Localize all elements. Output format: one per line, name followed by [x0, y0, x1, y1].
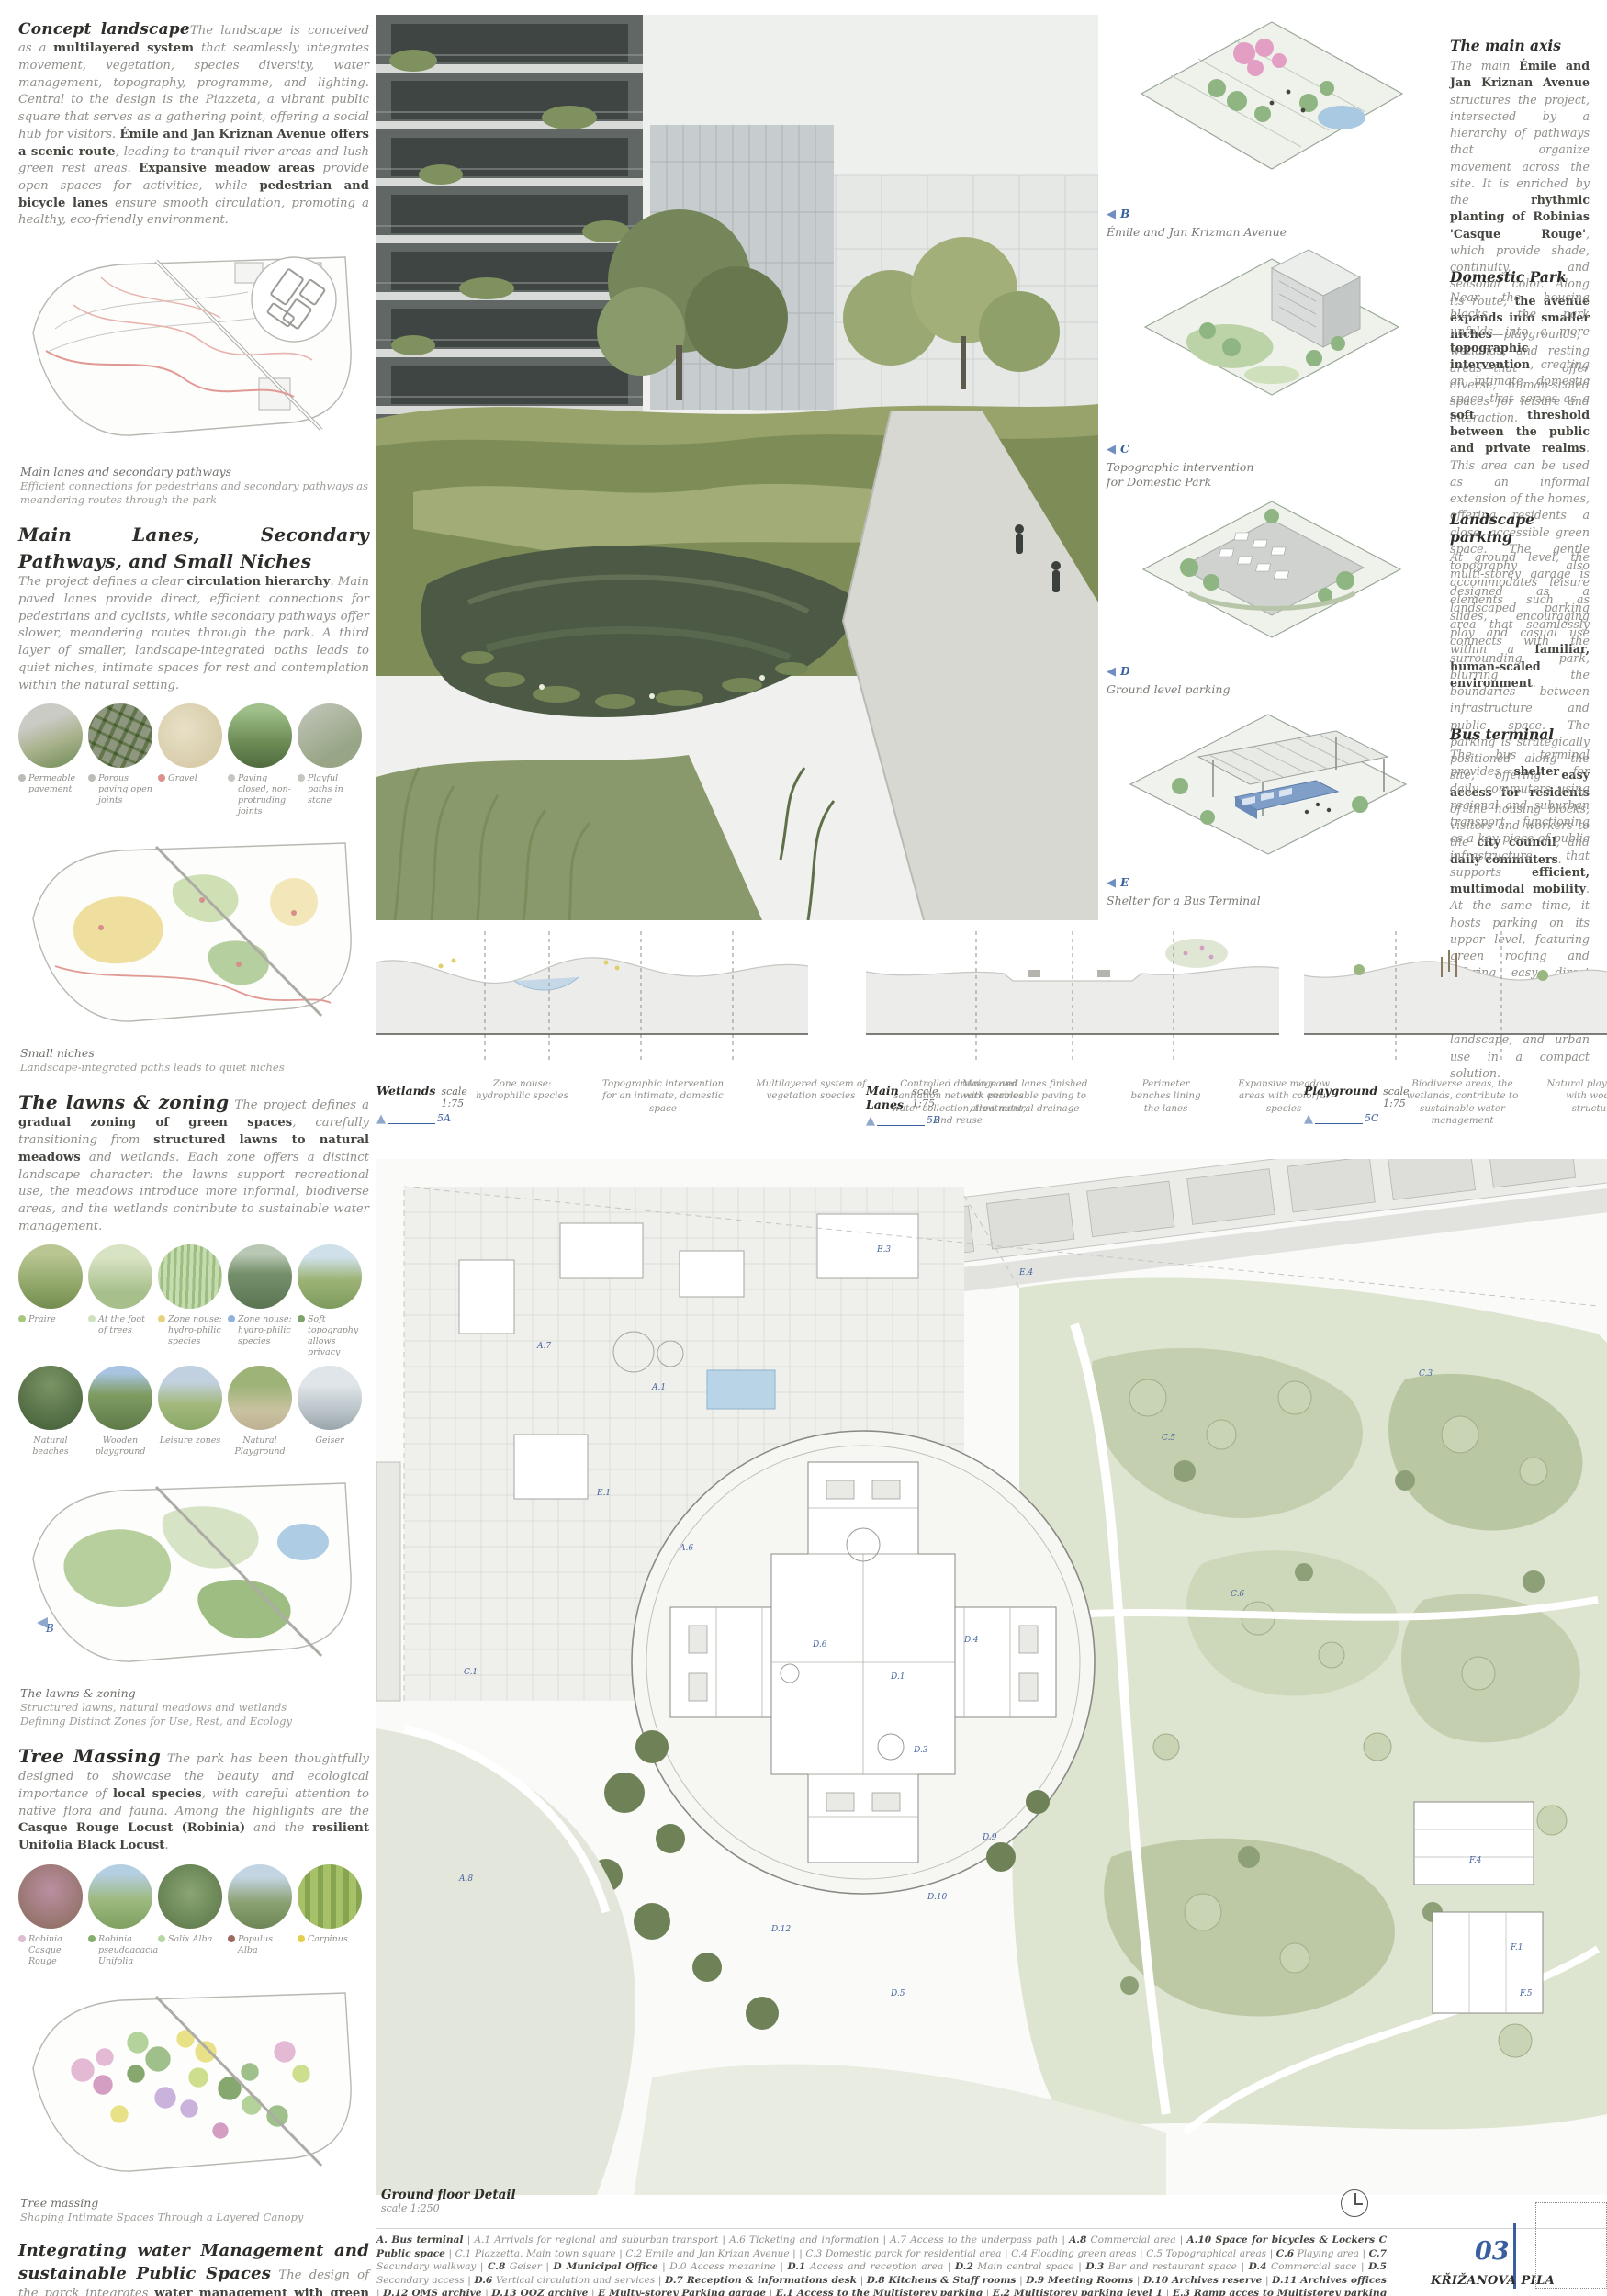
- plan-room-label: A.7: [537, 1343, 551, 1351]
- plan-room-label: F.1: [1511, 1944, 1523, 1953]
- figure-tree-massing-plan: Tree massing Shaping Intimate Spaces Thr…: [18, 1978, 369, 2224]
- block-title: Bus terminal: [1450, 726, 1590, 743]
- legend-dot-icon: [158, 1315, 165, 1322]
- zone-swatch: Zone nouse: hydro-philic species: [228, 1244, 292, 1358]
- caption-title: The lawns & zoning: [20, 1686, 369, 1701]
- material-photo: [298, 703, 362, 768]
- zone-label: Zone nouse: hydro-philic species: [168, 1314, 222, 1347]
- axon-caption-text: Émile and Jan Krizman Avenue: [1107, 225, 1287, 240]
- species-photo: [228, 1864, 292, 1929]
- legend-dot-icon: [298, 1935, 305, 1942]
- legend-dot-icon: [88, 1935, 96, 1942]
- zone-label: At the foot of trees: [98, 1314, 152, 1336]
- section-main-lanes: Main Lanes, Secondary Pathways, and Smal…: [18, 522, 369, 694]
- view-letter: C: [1120, 443, 1129, 456]
- foreground-building: [376, 15, 643, 419]
- axon-parking: [1134, 492, 1410, 667]
- material-photo: [228, 703, 292, 768]
- figure-lawns-zoning-plan: B The lawns & zoning Structured lawns, n…: [18, 1469, 369, 1728]
- section-marker-icon: ▲: [376, 1115, 386, 1124]
- zone-label: Soft topography allows privacy: [308, 1314, 362, 1358]
- material-label: Paving closed, non-protruding joints: [238, 773, 292, 817]
- plan-room-label: D.4: [964, 1637, 978, 1645]
- zone-label: Geiser: [315, 1435, 343, 1446]
- axon-caption-domestic: ◀ C Topographic intervention for Domesti…: [1107, 439, 1263, 490]
- species-swatch: Populus Alba: [228, 1864, 292, 1967]
- plan-room-label: D.1: [891, 1673, 905, 1682]
- view-letter: E: [1120, 876, 1129, 889]
- axon-caption-avenue: ◀ B Émile and Jan Krizman Avenue: [1107, 204, 1287, 240]
- left-column: Concept landscapeThe landscape is concei…: [18, 18, 369, 2296]
- species-label: Carpinus: [308, 1934, 348, 1945]
- zone-swatch: Geiser: [298, 1366, 362, 1458]
- legend-dot-icon: [18, 1315, 26, 1322]
- zone-swatch: Zone nouse: hydro-philic species: [158, 1244, 222, 1358]
- view-letter: D: [1120, 665, 1129, 678]
- material-label: Porous paving open joints: [98, 773, 152, 806]
- plan-room-label: C.5: [1162, 1435, 1175, 1443]
- tree-massing-drawing: [18, 1978, 369, 2185]
- caption-title: Small niches: [20, 1046, 369, 1061]
- view-marker-icon: ◀: [1107, 443, 1116, 456]
- plan-title: Ground floor Detail: [381, 2188, 516, 2202]
- band-scale: scale 1:75: [912, 1086, 940, 1109]
- zone-label: Zone nouse: hydro-philic species: [238, 1314, 292, 1347]
- figure-caption: Main lanes and secondary pathways Effici…: [20, 465, 369, 507]
- material-swatch: Porous paving open joints: [88, 703, 152, 817]
- plan-title-block: Ground floor Detail scale 1:250: [381, 2188, 516, 2214]
- band-note: Zone nouse: hydrophilic species: [474, 1078, 570, 1128]
- species-label: Robinia Casque Rouge: [28, 1934, 83, 1967]
- zone-photo: [18, 1366, 83, 1430]
- plan-room-label: E.4: [1019, 1269, 1033, 1277]
- axon-caption-text: Topographic intervention for Domestic Pa…: [1107, 460, 1263, 490]
- band-note: Multilayered system of vegetation specie…: [756, 1078, 866, 1128]
- plan-room-label: E.1: [597, 1490, 611, 1498]
- zone-photo: [158, 1366, 222, 1430]
- species-row: Robinia Casque Rouge Robinia pseudoacaci…: [18, 1864, 369, 1967]
- zone-swatch: Praire: [18, 1244, 83, 1358]
- section-body: The park has been thoughtfully designed …: [18, 1752, 369, 1852]
- axon-domestic-park: [1134, 246, 1410, 430]
- zone-swatch: Natural beaches: [18, 1366, 83, 1458]
- plan-room-label: E.3: [877, 1246, 891, 1255]
- legend-dot-icon: [228, 1315, 235, 1322]
- plan-room-label: D.3: [914, 1747, 927, 1755]
- block-title: Domestic Park: [1450, 268, 1590, 286]
- material-photo: [88, 703, 152, 768]
- plan-room-label: F.5: [1520, 1990, 1532, 1998]
- section-body: The project defines a clear circulation …: [18, 575, 369, 692]
- main-lanes-section-drawing: [866, 926, 1279, 1075]
- band-name: Wetlands: [376, 1084, 435, 1097]
- material-swatch: Gravel: [158, 703, 222, 817]
- axon-caption-parking: ◀ D Ground level parking: [1107, 661, 1230, 697]
- axon-caption-text: Shelter for a Bus Terminal: [1107, 894, 1261, 908]
- band-label-wetlands: Wetlandsscale 1:75 ▲5A: [376, 1078, 465, 1124]
- legend-dot-icon: [88, 774, 96, 782]
- band-note: Natural playgrounds with wooden structur…: [1544, 1078, 1607, 1128]
- ground-floor-plan: E.3E.4E.1A.7A.1A.6A.8C.1C.5C.3C.6D.6D.1D…: [376, 1159, 1607, 2195]
- concept-landscape-title: Concept landscape: [18, 20, 190, 39]
- zone-label: Praire: [28, 1314, 56, 1325]
- material-photo: [158, 703, 222, 768]
- legend-dot-icon: [298, 774, 305, 782]
- zone-label: Natural Playground: [228, 1435, 292, 1458]
- plan-scale: scale 1:250: [381, 2202, 516, 2214]
- species-photo: [298, 1864, 362, 1929]
- caption-sub: Shaping Intimate Spaces Through a Layere…: [20, 2211, 369, 2224]
- band-ref: 5B: [927, 1114, 940, 1126]
- plan-room-label: D.12: [771, 1926, 791, 1934]
- band-group-main-lanes: Main Lanesscale 1:75 ▲5B Main paved lane…: [866, 926, 1288, 1126]
- legend-dot-icon: [298, 1315, 305, 1322]
- zone-swatch: Soft topography allows privacy: [298, 1244, 362, 1358]
- materials-row: Permeable pavement Porous paving open jo…: [18, 703, 369, 817]
- species-swatch: Robinia pseudoacacia Unifolia: [88, 1864, 152, 1967]
- species-swatch: Carpinus: [298, 1864, 362, 1967]
- species-label: Robinia pseudoacacia Unifolia: [98, 1934, 158, 1967]
- view-marker-icon: ◀: [1107, 208, 1116, 221]
- legend-dot-icon: [88, 1315, 96, 1322]
- zone-swatch: At the foot of trees: [88, 1244, 152, 1358]
- plan-room-label: D.6: [813, 1641, 826, 1649]
- legend-dot-icon: [18, 1935, 26, 1942]
- presentation-board: Concept landscapeThe landscape is concei…: [0, 0, 1607, 2296]
- axon-avenue: [1134, 15, 1410, 198]
- section-title: Main Lanes, Secondary Pathways, and Smal…: [18, 523, 369, 571]
- caption-sub: Efficient connections for pedestrians an…: [20, 479, 369, 507]
- species-photo: [88, 1864, 152, 1929]
- zone-swatch: Leisure zones: [158, 1366, 222, 1458]
- caption-title: Main lanes and secondary pathways: [20, 465, 369, 479]
- zone-label: Leisure zones: [160, 1435, 221, 1446]
- legend-dot-icon: [228, 1935, 235, 1942]
- playground-section-drawing: [1304, 926, 1607, 1075]
- figure-caption: Tree massing Shaping Intimate Spaces Thr…: [20, 2196, 369, 2224]
- figure-main-lanes-plan: Main lanes and secondary pathways Effici…: [18, 241, 369, 507]
- plan-room-label: A.1: [652, 1384, 666, 1392]
- plan-room-label: D.9: [983, 1834, 996, 1842]
- band-name: Main Lanes: [866, 1084, 906, 1111]
- plan-room-label: C.1: [464, 1669, 478, 1677]
- concept-landscape-paragraph: Concept landscapeThe landscape is concei…: [18, 18, 369, 230]
- legend-dot-icon: [158, 1935, 165, 1942]
- section-tree-massing: Tree Massing The park has been thoughtfu…: [18, 1743, 369, 1855]
- plan-room-label: D.5: [891, 1990, 905, 1998]
- right-column: The main axis The main Émile and Jan Kri…: [1450, 15, 1590, 920]
- band-ref: 5C: [1365, 1112, 1378, 1124]
- material-label: Permeable pavement: [28, 773, 83, 795]
- view-marker-icon: ◀: [1107, 876, 1116, 890]
- band-note: Main paved lanes finished with permeable…: [951, 1078, 1098, 1115]
- species-swatch: Salix Alba: [158, 1864, 222, 1967]
- band-ref: 5A: [437, 1112, 451, 1124]
- footer: Ground floor Detail scale 1:250 A. Bus t…: [376, 2195, 1607, 2294]
- zone-swatch: Natural Playground: [228, 1366, 292, 1458]
- axon-caption-bus: ◀ E Shelter for a Bus Terminal: [1107, 872, 1261, 908]
- zone-label: Wooden playground: [88, 1435, 152, 1458]
- hero-render-photo: [376, 15, 1098, 920]
- figure-caption: Small niches Landscape-integrated paths …: [20, 1046, 369, 1075]
- species-photo: [18, 1864, 83, 1929]
- species-label: Populus Alba: [238, 1934, 292, 1956]
- zone-photo: [298, 1244, 362, 1309]
- master-plan-drawing: [376, 1159, 1607, 2195]
- park-render: [376, 15, 1098, 920]
- page-number: 03: [1475, 2237, 1510, 2266]
- section-body: The project defines a gradual zoning of …: [18, 1098, 369, 1233]
- section-title: Tree Massing: [18, 1745, 161, 1767]
- plan-room-label: C.6: [1231, 1591, 1244, 1599]
- caption-sub: Defining Distinct Zones for Use, Rest, a…: [20, 1715, 369, 1728]
- caption-sub: Structured lawns, natural meadows and we…: [20, 1701, 369, 1715]
- view-letter: B: [1120, 208, 1129, 220]
- zone-photo: [228, 1366, 292, 1430]
- block-title: Landscape parking: [1450, 511, 1590, 546]
- material-swatch: Permeable pavement: [18, 703, 83, 817]
- band-label-playground: Playgroundscale 1:75 ▲5C: [1304, 1078, 1396, 1124]
- band-notes: Biodiverse areas, the wetlands, contribu…: [1405, 1078, 1607, 1128]
- axon-caption-text: Ground level parking: [1107, 682, 1230, 697]
- zoning-row-a: Praire At the foot of trees Zone nouse: …: [18, 1244, 369, 1358]
- small-niches-drawing: [18, 828, 369, 1035]
- plan-room-label: A.6: [680, 1545, 693, 1553]
- stamp-box: [1535, 2202, 1607, 2289]
- species-label: Salix Alba: [168, 1934, 212, 1945]
- block-title: The main axis: [1450, 37, 1590, 54]
- zone-photo: [88, 1366, 152, 1430]
- band-group-playground: Playgroundscale 1:75 ▲5C Biodiverse area…: [1304, 926, 1607, 1128]
- axonometric-strip: ◀ B Émile and Jan Krizman Avenue ◀ C Top…: [1107, 15, 1411, 920]
- zoning-row-b: Natural beaches Wooden playground Leisur…: [18, 1366, 369, 1458]
- zone-photo: [298, 1366, 362, 1430]
- species-photo: [158, 1864, 222, 1929]
- section-marker-icon: ▲: [866, 1117, 875, 1126]
- axon-bus-terminal: [1125, 709, 1411, 867]
- material-label: Playful paths in stone: [308, 773, 362, 806]
- plan-room-label: D.10: [927, 1894, 947, 1902]
- legend-dot-icon: [18, 774, 26, 782]
- band-group-wetlands: Wetlandsscale 1:75 ▲5A Zone nouse: hydro…: [376, 926, 868, 1128]
- view-marker-icon: ◀: [1107, 665, 1116, 679]
- figure-small-niches-plan: Small niches Landscape-integrated paths …: [18, 828, 369, 1075]
- legend-dot-icon: [158, 774, 165, 782]
- plan-legend: A. Bus terminal | A.1 Arrivals for regio…: [376, 2234, 1387, 2296]
- main-lanes-plan-drawing: [18, 241, 369, 454]
- plan-room-label: C.3: [1419, 1370, 1433, 1379]
- section-water-management: Integrating water Management and sustain…: [18, 2239, 369, 2296]
- material-label: Gravel: [168, 773, 197, 784]
- band-notes: Main paved lanes finished with permeable…: [951, 1078, 1334, 1115]
- zone-swatch: Wooden playground: [88, 1366, 152, 1458]
- zone-photo: [158, 1244, 222, 1309]
- concept-landscape-body: The landscape is conceived as a multilay…: [18, 24, 369, 227]
- band-scale: scale 1:75: [441, 1086, 466, 1109]
- material-swatch: Playful paths in stone: [298, 703, 362, 817]
- caption-title: Tree massing: [20, 2196, 369, 2211]
- legend-dot-icon: [228, 774, 235, 782]
- band-label-main-lanes: Main Lanesscale 1:75 ▲5B: [866, 1078, 940, 1126]
- zone-photo: [18, 1244, 83, 1309]
- zone-photo: [88, 1244, 152, 1309]
- circular-building: [632, 1431, 1095, 1894]
- wetlands-section-drawing: [376, 926, 808, 1075]
- zone-label: Natural beaches: [18, 1435, 83, 1458]
- band-note: Perimeter benches lining the lanes: [1122, 1078, 1209, 1115]
- species-swatch: Robinia Casque Rouge: [18, 1864, 83, 1967]
- material-swatch: Paving closed, non-protruding joints: [228, 703, 292, 817]
- north-arrow-icon: [1341, 2189, 1368, 2217]
- plan-room-label: F.4: [1469, 1857, 1481, 1865]
- zone-photo: [228, 1244, 292, 1309]
- section-lawns-zoning: The lawns & zoning The project defines a…: [18, 1089, 369, 1236]
- plan-room-label: A.8: [459, 1875, 473, 1884]
- lawns-zoning-drawing: B: [18, 1469, 369, 1675]
- section-title: The lawns & zoning: [18, 1091, 229, 1113]
- caption-sub: Landscape-integrated paths leads to quie…: [20, 1061, 369, 1075]
- sections-band: Wetlandsscale 1:75 ▲5A Zone nouse: hydro…: [376, 926, 1607, 1155]
- material-photo: [18, 703, 83, 768]
- band-note: Topographic intervention for an intimate…: [594, 1078, 732, 1128]
- band-note: Biodiverse areas, the wetlands, contribu…: [1405, 1078, 1520, 1128]
- section-marker-icon: ▲: [1304, 1115, 1313, 1124]
- band-name: Playground: [1304, 1084, 1377, 1097]
- figure-caption: The lawns & zoning Structured lawns, nat…: [20, 1686, 369, 1728]
